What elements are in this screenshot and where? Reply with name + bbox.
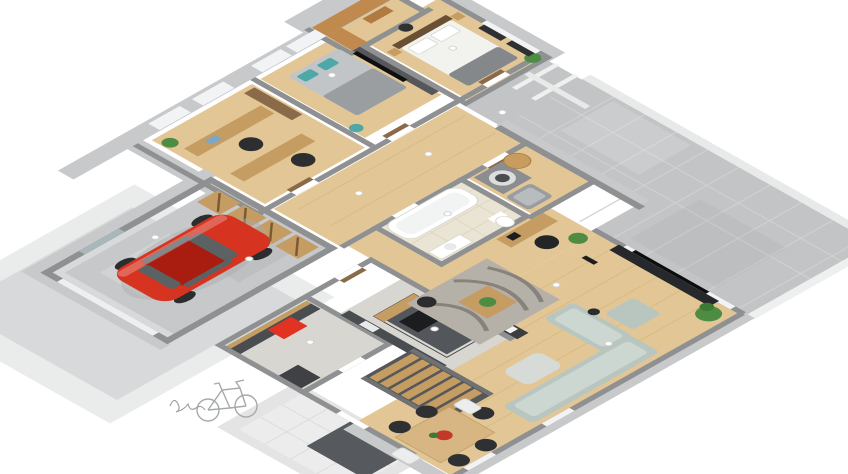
floorplan-svg: driveway terrace pergola-patio xyxy=(0,0,848,474)
floorplan-render: driveway terrace pergola-patio xyxy=(0,0,848,474)
